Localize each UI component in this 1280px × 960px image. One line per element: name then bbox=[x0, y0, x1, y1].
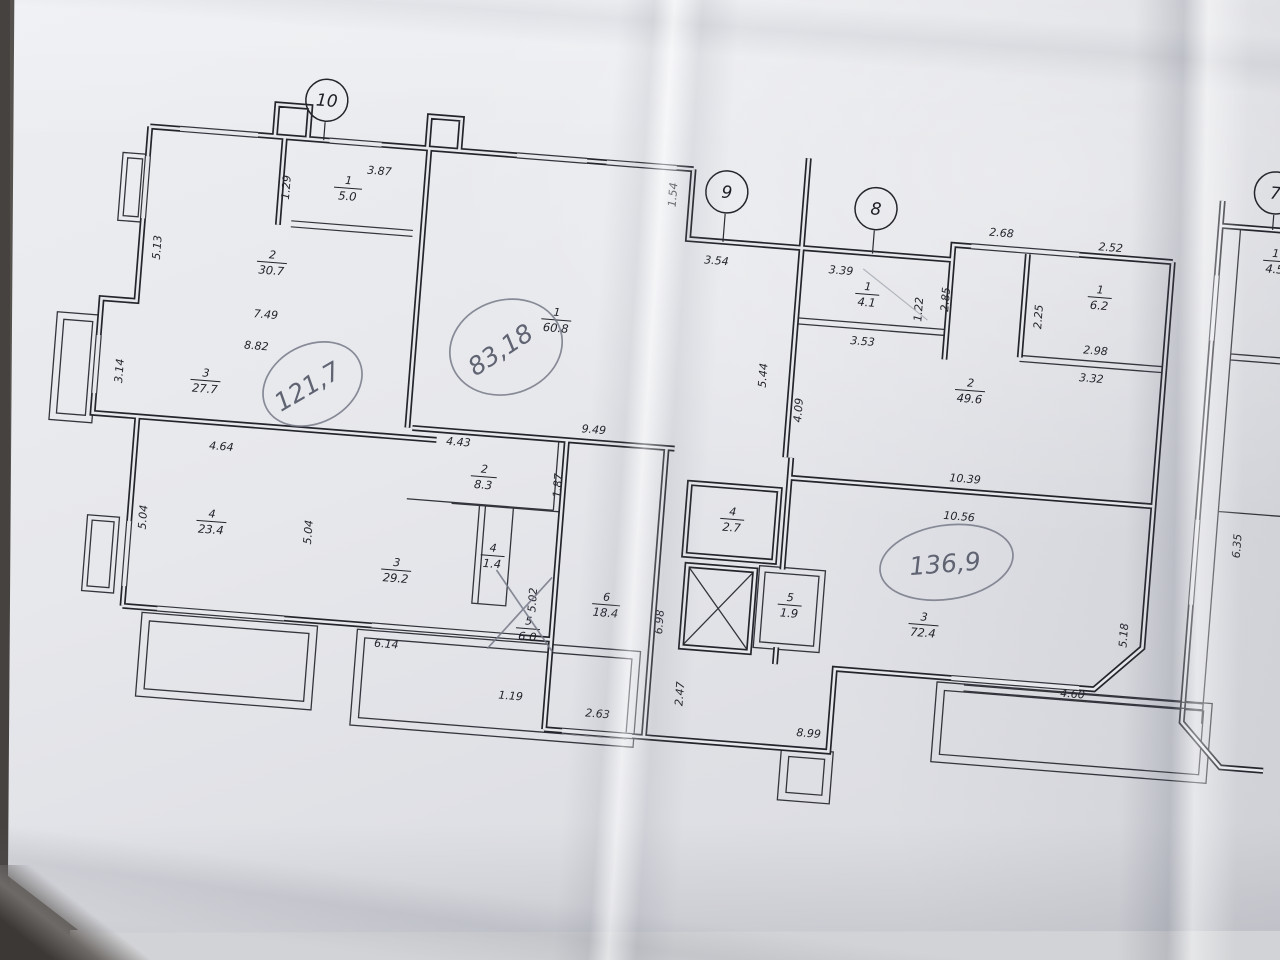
room-label-a8-r4: 4 2.7 bbox=[719, 504, 745, 535]
unit-marker-8: 8 bbox=[853, 186, 898, 231]
dim-9-49: 9.49 bbox=[581, 422, 606, 437]
unit-marker-7: 7 bbox=[1253, 170, 1280, 215]
dim-5-02: 5.02 bbox=[525, 587, 540, 612]
dim-1-54: 1.54 bbox=[666, 182, 681, 207]
room-label-a7-r1: 1 4.5 bbox=[1262, 246, 1280, 277]
room-label-a8-r5: 5 1.9 bbox=[777, 590, 803, 621]
photo-stage: 10 9 8 7 1 5.0 2 30.7 bbox=[0, 0, 1280, 960]
room-area: 5.0 bbox=[338, 188, 357, 203]
room-num: 2 bbox=[480, 463, 488, 477]
dim-2-85: 2.85 bbox=[938, 287, 953, 312]
room-num: 5 bbox=[786, 591, 794, 605]
handwritten-total-apt8: 136,9 bbox=[908, 547, 982, 582]
dim-3-87: 3.87 bbox=[367, 164, 392, 179]
floorplan-drawing: 10 9 8 7 1 5.0 2 30.7 bbox=[0, 0, 1280, 960]
unit-number-10: 10 bbox=[315, 90, 338, 112]
dim-5-13: 5.13 bbox=[150, 235, 165, 260]
room-area: 23.4 bbox=[197, 521, 224, 537]
dim-5-44: 5.44 bbox=[756, 363, 771, 388]
room-area: 60.8 bbox=[542, 320, 569, 336]
room-area: 27.7 bbox=[192, 381, 219, 397]
balconies-and-thin-structures bbox=[24, 135, 1280, 837]
room-num: 1 bbox=[1272, 247, 1280, 261]
room-label-a10-r4: 4 23.4 bbox=[195, 506, 227, 537]
unit-marker-9: 9 bbox=[704, 169, 749, 214]
room-label-a8-r1: 1 4.1 bbox=[854, 279, 880, 310]
plan-rotated-group: 10 9 8 7 1 5.0 2 30.7 bbox=[24, 60, 1280, 838]
dim-10-39: 10.39 bbox=[949, 471, 981, 486]
dimension-labels: 1.29 3.87 5.13 7.49 8.82 3.14 4.64 5.04 … bbox=[88, 140, 1268, 773]
dim-7-49: 7.49 bbox=[253, 307, 278, 322]
room-area: 18.4 bbox=[592, 605, 619, 621]
handwritten-total-apt10: 121,7 bbox=[269, 356, 345, 417]
unit-number-9: 9 bbox=[721, 183, 733, 204]
room-area: 30.7 bbox=[258, 262, 285, 278]
room-num: 2 bbox=[269, 248, 277, 262]
room-area: 72.4 bbox=[910, 625, 937, 641]
room-area: 6.2 bbox=[1089, 298, 1108, 313]
room-area: 1.9 bbox=[779, 605, 798, 620]
dim-3-32: 3.32 bbox=[1079, 371, 1104, 386]
dim-4-64: 4.64 bbox=[209, 439, 234, 454]
room-label-a8-r2: 2 49.6 bbox=[954, 375, 986, 406]
dim-2-63: 2.63 bbox=[585, 706, 610, 721]
room-num: 4 bbox=[208, 507, 216, 521]
room-label-a9-r2: 2 8.3 bbox=[470, 462, 498, 493]
room-label-a9-r6: 6 18.4 bbox=[591, 590, 621, 621]
dim-1-29: 1.29 bbox=[279, 175, 294, 200]
unit-number-8: 8 bbox=[870, 199, 883, 220]
room-area: 49.6 bbox=[956, 391, 983, 407]
room-num: 6 bbox=[603, 590, 611, 604]
dim-10-56: 10.56 bbox=[943, 509, 975, 524]
room-num: 3 bbox=[202, 366, 210, 380]
handwritten-total-apt9: 83,18 bbox=[463, 318, 539, 382]
dim-3-53: 3.53 bbox=[850, 334, 875, 349]
room-num: 3 bbox=[920, 610, 928, 624]
dim-1-19: 1.19 bbox=[498, 689, 523, 704]
room-area: 29.2 bbox=[382, 570, 409, 586]
room-label-a10-r3b: 3 29.2 bbox=[380, 555, 412, 586]
room-area: 1.4 bbox=[482, 556, 501, 571]
room-num: 1 bbox=[1096, 283, 1104, 297]
dim-6-14: 6.14 bbox=[374, 637, 399, 652]
dim-1-87: 1.87 bbox=[550, 473, 565, 498]
room-num: 3 bbox=[393, 556, 401, 570]
dim-2-68: 2.68 bbox=[989, 226, 1014, 241]
dim-6-35: 6.35 bbox=[1230, 533, 1245, 558]
dim-4-43: 4.43 bbox=[446, 435, 471, 450]
room-area: 2.7 bbox=[722, 520, 742, 535]
dim-2-98: 2.98 bbox=[1083, 343, 1108, 358]
room-label-a10-r1: 1 5.0 bbox=[333, 173, 363, 204]
room-area: 4.1 bbox=[857, 295, 876, 310]
dim-5-04-a: 5.04 bbox=[136, 504, 151, 529]
room-area: 4.5 bbox=[1265, 261, 1280, 276]
room-num: 1 bbox=[345, 174, 353, 188]
elevator-shaft-cross bbox=[681, 565, 755, 652]
unit-number-7: 7 bbox=[1269, 184, 1280, 205]
room-area: 8.3 bbox=[473, 477, 492, 492]
dim-4-09: 4.09 bbox=[791, 397, 806, 422]
room-label-a10-r3: 3 27.7 bbox=[189, 365, 221, 396]
room-num: 4 bbox=[489, 541, 497, 555]
dim-5-18: 5.18 bbox=[1116, 623, 1131, 648]
dim-5-04-b: 5.04 bbox=[301, 519, 316, 544]
dim-3-39: 3.39 bbox=[828, 263, 853, 278]
room-num: 1 bbox=[864, 280, 872, 294]
room-area: 6.0 bbox=[518, 629, 537, 644]
dim-3-14: 3.14 bbox=[112, 358, 127, 383]
room-num: 4 bbox=[729, 505, 737, 519]
dim-8-82: 8.82 bbox=[244, 339, 269, 354]
room-label-a9-r4: 4 1.4 bbox=[479, 541, 505, 572]
dim-2-25: 2.25 bbox=[1031, 304, 1046, 329]
dim-4-60: 4.60 bbox=[1060, 687, 1085, 702]
dim-2-52: 2.52 bbox=[1098, 240, 1123, 255]
room-label-a8-r1b: 1 6.2 bbox=[1087, 283, 1113, 314]
dim-6-98: 6.98 bbox=[652, 609, 667, 634]
dim-8-99: 8.99 bbox=[796, 726, 821, 741]
room-num: 2 bbox=[967, 376, 975, 390]
dim-3-54: 3.54 bbox=[704, 253, 729, 268]
room-label-a8-r3: 3 72.4 bbox=[907, 610, 939, 641]
room-label-a10-r2: 2 30.7 bbox=[256, 247, 288, 278]
dim-2-47: 2.47 bbox=[672, 681, 687, 706]
